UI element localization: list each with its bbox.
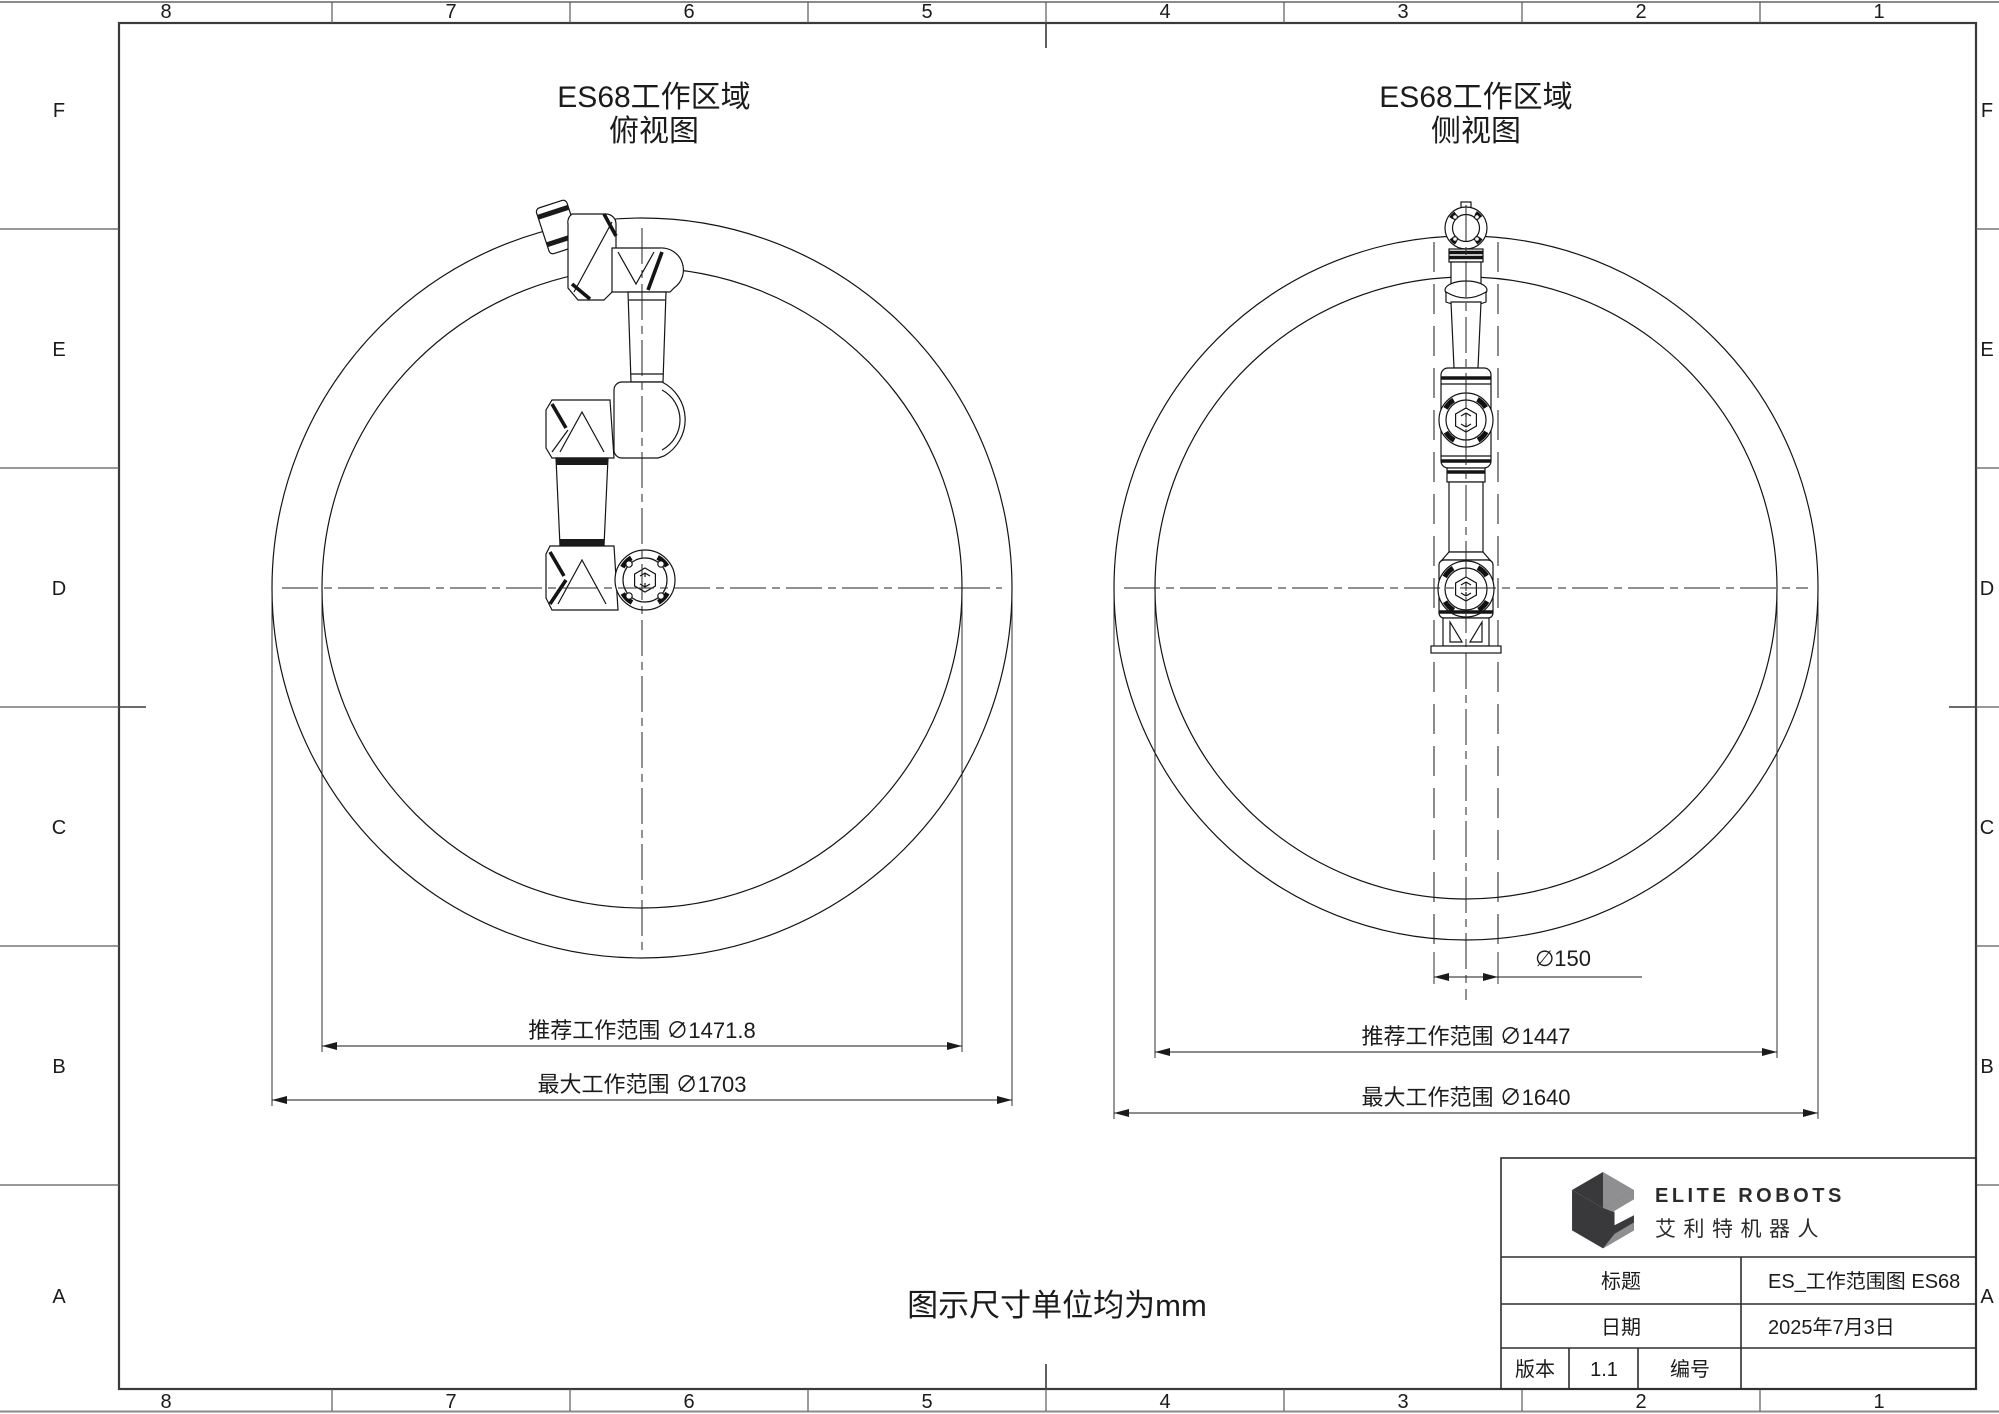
grid-row-label: A: [1980, 1286, 1994, 1308]
version-label: 版本: [1515, 1358, 1555, 1381]
grid-col-label: 7: [445, 1391, 456, 1413]
brand-name-en: ELITE ROBOTS: [1655, 1185, 1845, 1207]
dim-max-side: 最大工作范围 ∅1640: [1361, 1085, 1570, 1110]
grid-row-label: D: [1980, 578, 1994, 600]
grid-col-label: 8: [160, 1, 171, 23]
title-block: ELITE ROBOTS 艾利特机器人 标题 ES_工作范围图 ES68 日期 …: [1501, 1158, 1976, 1389]
grid-col-label: 4: [1159, 1391, 1170, 1413]
number-label: 编号: [1670, 1358, 1710, 1381]
side-view: ∅150 推荐工作范围 ∅1447 最大工作范围 ∅1640: [1114, 202, 1818, 1119]
grid-row-label: E: [52, 339, 65, 361]
brand-name-cn: 艾利特机器人: [1655, 1218, 1826, 1241]
grid-row-label: B: [52, 1056, 65, 1078]
side-view-title-line2: 侧视图: [1431, 115, 1521, 148]
grid-col-label: 7: [445, 1, 456, 23]
grid-row-label: C: [52, 817, 66, 839]
units-note: 图示尺寸单位均为mm: [907, 1288, 1207, 1323]
grid-row-label: E: [1980, 339, 1993, 361]
date-value: 2025年7月3日: [1768, 1316, 1895, 1339]
grid-col-label: 5: [921, 1, 932, 23]
grid-col-label: 2: [1635, 1391, 1646, 1413]
grid-col-label: 3: [1397, 1391, 1408, 1413]
top-view-title-line1: ES68工作区域: [557, 81, 750, 114]
top-view: 推荐工作范围 ∅1471.8 最大工作范围 ∅1703: [272, 199, 1012, 1106]
grid-row-label: F: [53, 100, 65, 122]
top-view-title-line2: 俯视图: [609, 115, 699, 148]
title-value: ES_工作范围图 ES68: [1768, 1270, 1960, 1293]
grid-row-label: D: [52, 578, 66, 600]
dim-recommended-side: 推荐工作范围 ∅1447: [1361, 1024, 1570, 1049]
drawing-sheet: 8 7 6 5 4 3 2 1 8 7 6 5 4 3 2 1 F E D C …: [0, 0, 1999, 1414]
grid-row-label: A: [52, 1286, 66, 1308]
dim-max-top: 最大工作范围 ∅1703: [537, 1072, 746, 1097]
dim-recommended-top: 推荐工作范围 ∅1471.8: [528, 1018, 755, 1043]
grid-col-label: 1: [1873, 1, 1884, 23]
side-view-title-line1: ES68工作区域: [1379, 81, 1572, 114]
date-label: 日期: [1601, 1317, 1641, 1339]
elite-robots-logo-icon: [1572, 1172, 1634, 1248]
grid-col-label: 5: [921, 1391, 932, 1413]
title-label: 标题: [1601, 1270, 1641, 1293]
grid-col-label: 6: [683, 1, 694, 23]
grid-col-label: 6: [683, 1391, 694, 1413]
grid-row-label: C: [1980, 817, 1994, 839]
robot-top-view: [535, 199, 685, 610]
grid-row-label: B: [1980, 1056, 1993, 1078]
grid-col-label: 3: [1397, 1, 1408, 23]
grid-col-label: 1: [1873, 1391, 1884, 1413]
grid-col-label: 2: [1635, 1, 1646, 23]
grid-row-label: F: [1981, 100, 1993, 122]
dim-column-diameter: ∅150: [1535, 946, 1591, 971]
version-value: 1.1: [1590, 1359, 1618, 1381]
grid-col-label: 8: [160, 1391, 171, 1413]
grid-col-label: 4: [1159, 1, 1170, 23]
